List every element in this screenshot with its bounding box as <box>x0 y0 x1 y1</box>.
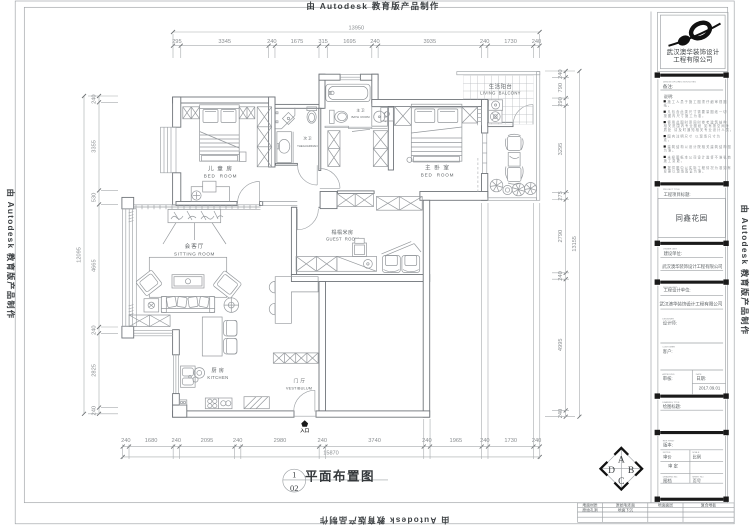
svg-text:建筑结构以设计院相关建筑结构图: 建筑结构以设计院相关建筑结构图 <box>668 144 732 149</box>
svg-text:B: B <box>628 466 634 476</box>
svg-text:02: 02 <box>290 483 299 493</box>
svg-text:地面面层: 地面面层 <box>658 503 673 508</box>
svg-text:生活阳台: 生活阳台 <box>489 82 513 90</box>
svg-text:SITTING ROOM: SITTING ROOM <box>174 252 215 257</box>
svg-text:1965: 1965 <box>450 438 463 444</box>
svg-text:3740: 3740 <box>368 438 381 444</box>
svg-text:KITCHEN: KITCHEN <box>207 375 228 380</box>
svg-text:儿 童 房: 儿 童 房 <box>208 165 233 173</box>
svg-text:绘图标题:: 绘图标题: <box>663 403 681 410</box>
svg-text:次 卫: 次 卫 <box>303 136 312 141</box>
svg-text:LIVING BALCONY: LIVING BALCONY <box>480 91 521 96</box>
svg-text:THEGUARDIAN: THEGUARDIAN <box>297 144 317 148</box>
svg-text:武汉澳华装饰设计工程有限公司: 武汉澳华装饰设计工程有限公司 <box>662 263 722 270</box>
svg-text:工程有限公司: 工程有限公司 <box>673 55 713 64</box>
svg-text:盾处 请及时通知相关专业设计人员。: 盾处 请及时通知相关专业设计人员。 <box>664 127 735 132</box>
svg-text:1680: 1680 <box>145 438 158 444</box>
svg-text:门 厅: 门 厅 <box>294 378 306 385</box>
svg-text:BATH ROOM: BATH ROOM <box>351 115 370 119</box>
svg-text:图内注明尺寸 以现场尺寸为: 图内注明尺寸 以现场尺寸为 <box>668 134 721 139</box>
svg-text:240: 240 <box>480 39 490 45</box>
svg-text:由 Autodesk 教育版产品制作: 由 Autodesk 教育版产品制作 <box>6 189 16 320</box>
svg-text:同鑫花园: 同鑫花园 <box>675 213 707 223</box>
svg-text:BED ROOM: BED ROOM <box>204 174 238 179</box>
svg-text:审 定: 审 定 <box>668 462 678 469</box>
svg-text:主 卧 室: 主 卧 室 <box>425 164 450 172</box>
svg-text:地面下沉: 地面下沉 <box>618 507 633 512</box>
svg-text:240: 240 <box>318 438 328 444</box>
svg-text:由 Autodesk 教育版产品制作: 由 Autodesk 教育版产品制作 <box>306 1 439 11</box>
svg-text:按图内尺寸施工为准。: 按图内尺寸施工为准。 <box>664 113 707 118</box>
svg-text:240: 240 <box>370 39 380 45</box>
svg-text:2980: 2980 <box>274 438 287 444</box>
svg-text:530: 530 <box>92 193 98 203</box>
svg-text:施工人员于施工图须仔细审视图: 施工人员于施工图须仔细审视图 <box>668 99 728 104</box>
svg-text:工程项目标题:: 工程项目标题: <box>664 191 691 198</box>
svg-text:原始孔洞: 原始孔洞 <box>582 507 597 512</box>
svg-text:主 卫: 主 卫 <box>356 108 365 113</box>
svg-text:比例: 比例 <box>693 453 702 460</box>
svg-text:GUEST ROOM: GUEST ROOM <box>326 237 359 242</box>
svg-text:A: A <box>618 456 625 466</box>
svg-text:2825: 2825 <box>92 364 98 377</box>
svg-text:纸。: 纸。 <box>664 102 673 107</box>
svg-text:240: 240 <box>267 39 277 45</box>
svg-text:2017.09.01: 2017.09.01 <box>699 385 721 390</box>
svg-text:审价: 审价 <box>663 453 672 460</box>
svg-text:240: 240 <box>172 438 182 444</box>
svg-text:D: D <box>608 466 615 476</box>
svg-text:由 Autodesk 教育版产品制作: 由 Autodesk 教育版产品制作 <box>740 205 750 336</box>
svg-text:变更以现场签证为准。: 变更以现场签证为准。 <box>664 168 707 173</box>
svg-text:施工变更。: 施工变更。 <box>664 158 685 163</box>
svg-text:复合地板: 复合地板 <box>701 503 716 508</box>
svg-text:240: 240 <box>121 438 131 444</box>
svg-text:地面材质: 地面材质 <box>582 503 597 508</box>
svg-text:240: 240 <box>92 325 98 335</box>
svg-text:2790: 2790 <box>558 230 564 243</box>
svg-text:准。: 准。 <box>664 137 673 142</box>
svg-text:315: 315 <box>318 39 328 45</box>
svg-text:1730: 1730 <box>504 39 517 45</box>
svg-text:4665: 4665 <box>92 259 98 272</box>
svg-text:平面布置图: 平面布置图 <box>305 469 375 484</box>
svg-text:3345: 3345 <box>218 39 231 45</box>
svg-text:295: 295 <box>172 39 182 45</box>
svg-text:为准。: 为准。 <box>664 148 677 153</box>
svg-text:C: C <box>618 477 624 487</box>
svg-text:12095: 12095 <box>77 247 83 263</box>
svg-text:厨 房: 厨 房 <box>212 367 225 374</box>
svg-text:3355: 3355 <box>92 140 98 153</box>
svg-text:240: 240 <box>233 438 243 444</box>
svg-text:会客厅: 会客厅 <box>185 242 205 250</box>
svg-text:BED ROOM: BED ROOM <box>421 173 455 178</box>
svg-text:DESIGN OF DIRECTION NOTES: DESIGN OF DIRECTION NOTES <box>663 81 696 83</box>
svg-text:榻榻米房: 榻榻米房 <box>331 229 353 236</box>
svg-text:3935: 3935 <box>423 39 436 45</box>
svg-text:1: 1 <box>292 470 296 480</box>
svg-text:工程设计单位:: 工程设计单位: <box>664 286 691 293</box>
svg-text:VESTIBULUM: VESTIBULUM <box>286 387 312 391</box>
svg-text:备注:: 备注: <box>663 83 673 90</box>
svg-text:客户:: 客户: <box>663 348 673 355</box>
svg-text:原始毛坯面: 原始毛坯面 <box>616 503 635 508</box>
svg-text:设计师:: 设计师: <box>663 320 677 327</box>
svg-text:武汉澳华装饰设计: 武汉澳华装饰设计 <box>667 47 720 56</box>
svg-text:1675: 1675 <box>291 39 304 45</box>
svg-text:2095: 2095 <box>201 438 214 444</box>
svg-text:武汉澳华装饰设计工程有限公司: 武汉澳华装饰设计工程有限公司 <box>659 300 722 307</box>
svg-text:1695: 1695 <box>343 39 356 45</box>
svg-text:1730: 1730 <box>504 438 517 444</box>
svg-text:13950: 13950 <box>349 26 365 32</box>
svg-text:建设单位:: 建设单位: <box>664 250 682 257</box>
svg-text:290: 290 <box>558 97 564 107</box>
svg-text:由 Autodesk 教育版产品制作: 由 Autodesk 教育版产品制作 <box>319 516 450 526</box>
svg-text:13155: 13155 <box>572 236 578 252</box>
svg-text:审核:: 审核: <box>663 375 673 382</box>
svg-text:3295: 3295 <box>558 143 564 156</box>
svg-text:4995: 4995 <box>558 338 564 351</box>
svg-text:版本:: 版本: <box>663 442 673 449</box>
svg-text:OWNER UNIT: OWNER UNIT <box>663 248 678 250</box>
svg-text:790: 790 <box>558 83 564 93</box>
